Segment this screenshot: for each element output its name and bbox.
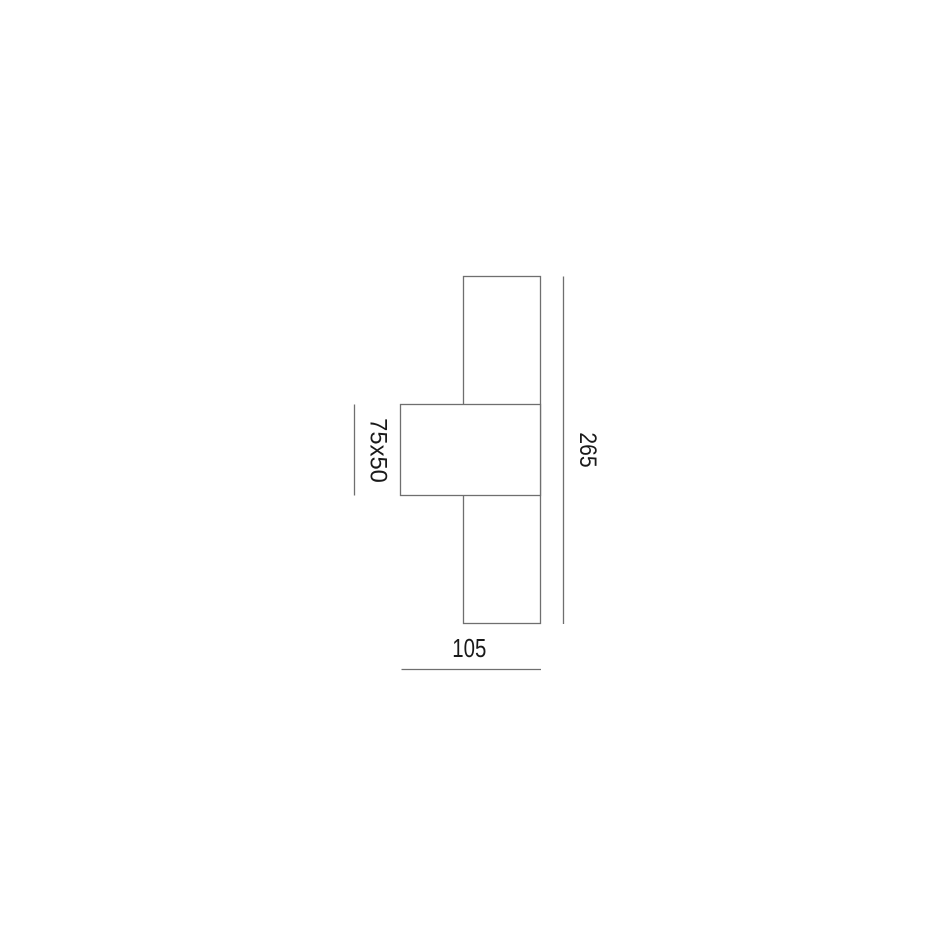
svg-text:75x50: 75x50 [365, 418, 392, 483]
svg-text:105: 105 [452, 634, 486, 663]
svg-text:265: 265 [575, 432, 602, 467]
